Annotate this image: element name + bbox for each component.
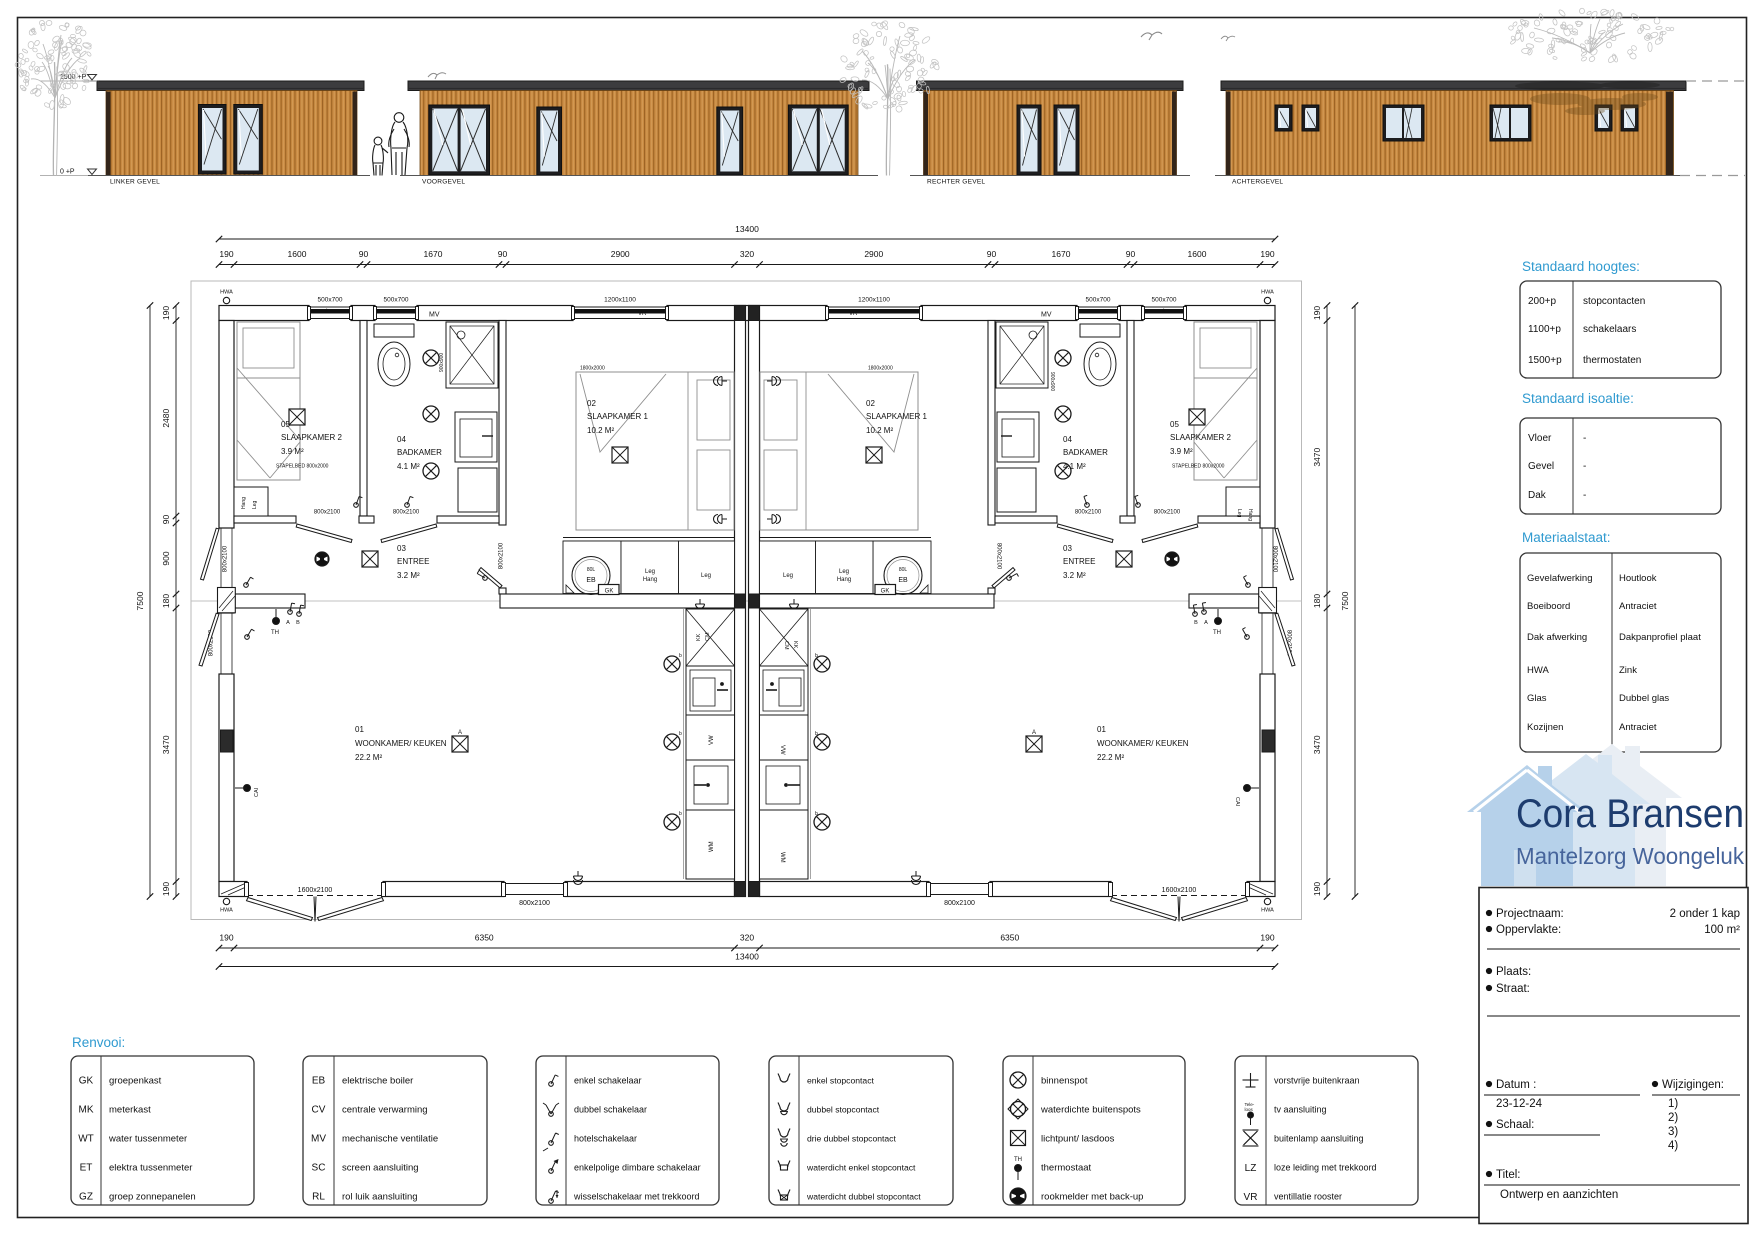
svg-text:200+p: 200+p xyxy=(1528,296,1557,307)
svg-text:02: 02 xyxy=(587,399,596,408)
svg-text:BADKAMER: BADKAMER xyxy=(397,448,442,457)
svg-text:320: 320 xyxy=(740,933,754,943)
svg-text:3.9 M²: 3.9 M² xyxy=(281,447,304,456)
svg-text:90: 90 xyxy=(161,515,171,525)
svg-text:EB: EB xyxy=(312,1076,326,1087)
svg-text:CM: CM xyxy=(705,632,711,641)
svg-text:1200x1100: 1200x1100 xyxy=(604,297,636,304)
svg-text:HWA: HWA xyxy=(1261,908,1274,914)
svg-text:1600: 1600 xyxy=(1188,249,1207,259)
svg-text:320: 320 xyxy=(740,249,754,259)
svg-text:1500+p: 1500+p xyxy=(1528,355,1562,366)
svg-text:1): 1) xyxy=(1668,1098,1678,1110)
svg-text:*: * xyxy=(1162,307,1166,317)
svg-text:80L: 80L xyxy=(587,567,596,573)
svg-text:drie dubbel stopcontact: drie dubbel stopcontact xyxy=(807,1134,896,1144)
svg-text:MV: MV xyxy=(429,312,440,319)
svg-text:800x2100: 800x2100 xyxy=(519,900,550,907)
svg-text:Gevelafwerking: Gevelafwerking xyxy=(1527,573,1592,584)
svg-text:SLAAPKAMER 2: SLAAPKAMER 2 xyxy=(281,433,342,442)
svg-text:HWA: HWA xyxy=(1261,290,1274,296)
svg-text:b: b xyxy=(679,811,682,817)
svg-text:thermostaat: thermostaat xyxy=(1041,1163,1092,1174)
svg-text:dubbel stopcontact: dubbel stopcontact xyxy=(807,1105,880,1115)
svg-text:1670: 1670 xyxy=(1052,249,1071,259)
svg-text:2900: 2900 xyxy=(611,249,630,259)
svg-text:LZ: LZ xyxy=(1245,1163,1257,1174)
svg-text:02: 02 xyxy=(866,399,875,408)
svg-text:MK: MK xyxy=(79,1105,94,1116)
svg-text:HWA: HWA xyxy=(220,908,233,914)
svg-text:B: B xyxy=(1194,620,1198,626)
svg-text:4.1 M²: 4.1 M² xyxy=(397,462,420,471)
svg-text:500x700: 500x700 xyxy=(1086,297,1111,304)
svg-text:Houtlook: Houtlook xyxy=(1619,573,1657,584)
svg-text:Dak: Dak xyxy=(1528,490,1547,501)
svg-text:STAPELBED 800x2000: STAPELBED 800x2000 xyxy=(1172,464,1225,470)
svg-text:Straat:: Straat: xyxy=(1496,983,1530,995)
svg-text:3.9 M²: 3.9 M² xyxy=(1170,447,1193,456)
svg-text:Hang: Hang xyxy=(643,577,657,583)
svg-text:elektra tussenmeter: elektra tussenmeter xyxy=(109,1163,192,1174)
svg-text:SLAAPKAMER 1: SLAAPKAMER 1 xyxy=(587,412,648,421)
svg-text:GK: GK xyxy=(881,589,890,595)
svg-text:Zink: Zink xyxy=(1619,665,1637,676)
svg-text:23-12-24: 23-12-24 xyxy=(1496,1098,1543,1110)
svg-text:1800x2000: 1800x2000 xyxy=(580,366,605,372)
svg-text:*: * xyxy=(325,307,329,317)
svg-text:190: 190 xyxy=(161,306,171,320)
svg-text:CV: CV xyxy=(312,1105,326,1116)
svg-text:Leg: Leg xyxy=(701,573,711,579)
svg-text:90: 90 xyxy=(359,249,369,259)
svg-text:Kozijnen: Kozijnen xyxy=(1527,722,1563,733)
svg-text:Materiaalstaat:: Materiaalstaat: xyxy=(1522,530,1611,545)
svg-text:KK: KK xyxy=(696,633,702,641)
svg-text:elektrische boiler: elektrische boiler xyxy=(342,1076,413,1087)
svg-text:Leg: Leg xyxy=(839,569,849,575)
svg-text:Leg: Leg xyxy=(1236,509,1242,518)
svg-text:rookmelder met back-up: rookmelder met back-up xyxy=(1041,1192,1143,1203)
svg-text:03: 03 xyxy=(397,544,406,553)
svg-text:-: - xyxy=(1583,433,1586,444)
svg-text:A: A xyxy=(458,730,462,736)
svg-text:Projectnaam:: Projectnaam: xyxy=(1496,908,1564,920)
svg-text:190: 190 xyxy=(219,933,233,943)
svg-text:190: 190 xyxy=(1260,249,1274,259)
svg-text:loze leiding met trekkoord: loze leiding met trekkoord xyxy=(1274,1163,1377,1173)
svg-text:190: 190 xyxy=(1260,933,1274,943)
svg-text:TH: TH xyxy=(1014,1157,1022,1163)
svg-text:buitenlamp aansluiting: buitenlamp aansluiting xyxy=(1274,1134,1364,1144)
svg-text:VOORGEVEL: VOORGEVEL xyxy=(422,179,465,186)
svg-text:Datum :: Datum : xyxy=(1496,1079,1536,1091)
svg-text:800x2100: 800x2100 xyxy=(499,542,505,569)
svg-text:190: 190 xyxy=(219,249,233,259)
svg-text:HWA: HWA xyxy=(220,290,233,296)
svg-text:Schaal:: Schaal: xyxy=(1496,1119,1534,1131)
svg-text:05: 05 xyxy=(1170,420,1179,429)
svg-text:ventillatie rooster: ventillatie rooster xyxy=(1274,1192,1342,1202)
svg-text:binnenspot: binnenspot xyxy=(1041,1076,1088,1087)
svg-text:500x700: 500x700 xyxy=(1152,297,1177,304)
svg-text:EB: EB xyxy=(586,577,596,584)
svg-text:1100+p: 1100+p xyxy=(1528,324,1561,335)
svg-text:VW: VW xyxy=(779,745,785,755)
svg-text:ENTREE: ENTREE xyxy=(1063,557,1095,566)
svg-text:wisselschakelaar met trekkoord: wisselschakelaar met trekkoord xyxy=(573,1192,700,1202)
svg-text:lichtpunt/ lasdoos: lichtpunt/ lasdoos xyxy=(1041,1134,1115,1145)
svg-text:LINKER GEVEL: LINKER GEVEL xyxy=(110,179,160,186)
svg-text:3.2 M²: 3.2 M² xyxy=(1063,571,1086,580)
svg-text:A: A xyxy=(1032,730,1036,736)
svg-text:Hang: Hang xyxy=(1247,509,1253,521)
svg-text:CAI: CAI xyxy=(1234,797,1240,807)
svg-text:04: 04 xyxy=(397,435,406,444)
svg-text:ACHTERGEVEL: ACHTERGEVEL xyxy=(1232,179,1283,186)
svg-text:waterdichte buitenspots: waterdichte buitenspots xyxy=(1040,1105,1141,1116)
svg-text:Ontwerp en aanzichten: Ontwerp en aanzichten xyxy=(1500,1189,1618,1201)
svg-text:Standaard hoogtes:: Standaard hoogtes: xyxy=(1522,259,1640,274)
svg-text:SLAAPKAMER 2: SLAAPKAMER 2 xyxy=(1170,433,1231,442)
svg-text:screen aansluiting: screen aansluiting xyxy=(342,1163,419,1174)
svg-text:B: B xyxy=(296,620,300,626)
svg-text:Titel:: Titel: xyxy=(1496,1169,1521,1181)
svg-text:Renvooi:: Renvooi: xyxy=(72,1035,125,1050)
svg-text:thermostaten: thermostaten xyxy=(1583,355,1641,366)
svg-text:Vloer: Vloer xyxy=(1528,433,1552,444)
svg-text:WT: WT xyxy=(78,1134,94,1145)
svg-text:Dakpanprofiel plaat: Dakpanprofiel plaat xyxy=(1619,632,1701,643)
svg-text:schakelaars: schakelaars xyxy=(1583,324,1636,335)
svg-text:CM: CM xyxy=(783,641,789,650)
svg-text:MV: MV xyxy=(311,1134,326,1145)
svg-text:1600x2100: 1600x2100 xyxy=(1162,887,1197,894)
svg-text:groepenkast: groepenkast xyxy=(109,1076,162,1087)
svg-text:2 onder 1 kap: 2 onder 1 kap xyxy=(1670,908,1740,920)
svg-text:10.2 M²: 10.2 M² xyxy=(866,426,893,435)
svg-text:RECHTER GEVEL: RECHTER GEVEL xyxy=(927,179,985,186)
svg-text:Wijzigingen:: Wijzigingen: xyxy=(1662,1079,1724,1091)
svg-text:Gevel: Gevel xyxy=(1528,461,1554,472)
svg-text:3): 3) xyxy=(1668,1126,1678,1138)
svg-text:100 m²: 100 m² xyxy=(1704,924,1740,936)
svg-text:3470: 3470 xyxy=(1312,735,1322,754)
svg-text:800x2100: 800x2100 xyxy=(944,900,975,907)
svg-text:centrale verwarming: centrale verwarming xyxy=(342,1105,428,1116)
svg-text:180: 180 xyxy=(161,594,171,608)
svg-text:A: A xyxy=(286,620,290,626)
svg-text:190: 190 xyxy=(1312,882,1322,896)
svg-text:enkelpolige dimbare schakelaar: enkelpolige dimbare schakelaar xyxy=(574,1163,701,1173)
svg-text:800x2100: 800x2100 xyxy=(1075,510,1102,516)
svg-text:WM: WM xyxy=(709,841,715,852)
svg-text:7500: 7500 xyxy=(1340,591,1350,610)
svg-text:stopcontacten: stopcontacten xyxy=(1583,296,1645,307)
svg-text:1600x2100: 1600x2100 xyxy=(298,887,333,894)
svg-text:1200x1100: 1200x1100 xyxy=(858,297,890,304)
svg-text:90: 90 xyxy=(1126,249,1136,259)
svg-text:180: 180 xyxy=(1312,594,1322,608)
svg-text:dubbel schakelaar: dubbel schakelaar xyxy=(574,1105,647,1115)
svg-text:Leg: Leg xyxy=(645,569,655,575)
svg-text:0 +P: 0 +P xyxy=(60,169,75,176)
svg-text:waterdicht dubbel stopcontact: waterdicht dubbel stopcontact xyxy=(806,1192,921,1202)
svg-text:2900: 2900 xyxy=(864,249,883,259)
svg-text:4): 4) xyxy=(1668,1140,1678,1152)
svg-text:Plaats:: Plaats: xyxy=(1496,966,1531,978)
svg-text:3470: 3470 xyxy=(161,735,171,754)
svg-text:waterdicht enkel stopcontact: waterdicht enkel stopcontact xyxy=(806,1163,916,1173)
svg-text:Boeiboord: Boeiboord xyxy=(1527,601,1570,612)
svg-text:tv aansluiting: tv aansluiting xyxy=(1274,1105,1327,1115)
svg-text:Standaard isoaltie:: Standaard isoaltie: xyxy=(1522,391,1634,406)
svg-text:rol luik aansluiting: rol luik aansluiting xyxy=(342,1192,418,1203)
svg-text:SC: SC xyxy=(312,1163,326,1174)
svg-text:RL: RL xyxy=(312,1192,325,1203)
svg-text:enkel schakelaar: enkel schakelaar xyxy=(574,1076,642,1086)
svg-text:MV: MV xyxy=(1041,312,1052,319)
svg-text:b: b xyxy=(679,731,682,737)
svg-text:190: 190 xyxy=(1312,306,1322,320)
svg-text:900x900: 900x900 xyxy=(439,353,445,372)
svg-text:500x700: 500x700 xyxy=(318,297,343,304)
svg-text:03: 03 xyxy=(1063,544,1072,553)
svg-text:190: 190 xyxy=(161,882,171,896)
svg-text:b: b xyxy=(679,653,682,659)
svg-text:13400: 13400 xyxy=(735,224,759,234)
svg-text:TH: TH xyxy=(271,630,279,636)
svg-text:90: 90 xyxy=(987,249,997,259)
svg-text:meterkast: meterkast xyxy=(109,1105,151,1116)
svg-text:BADKAMER: BADKAMER xyxy=(1063,448,1108,457)
svg-text:900x900: 900x900 xyxy=(1049,372,1055,391)
svg-text:01: 01 xyxy=(355,725,364,734)
svg-text:Glas: Glas xyxy=(1527,693,1547,704)
svg-text:Antraciet: Antraciet xyxy=(1619,601,1657,612)
svg-text:6350: 6350 xyxy=(475,933,494,943)
svg-text:Dak afwerking: Dak afwerking xyxy=(1527,632,1587,643)
svg-text:1670: 1670 xyxy=(424,249,443,259)
svg-text:01: 01 xyxy=(1097,725,1106,734)
svg-text:-: - xyxy=(1583,461,1586,472)
svg-text:Cora Bransen: Cora Bransen xyxy=(1516,792,1744,836)
svg-text:ENTREE: ENTREE xyxy=(397,557,429,566)
svg-text:A: A xyxy=(1204,620,1208,626)
svg-text:STAPELBED 800x2000: STAPELBED 800x2000 xyxy=(276,464,329,470)
svg-text:800x2100: 800x2100 xyxy=(393,510,420,516)
svg-text:Mantelzorg Woongeluk: Mantelzorg Woongeluk xyxy=(1516,843,1744,869)
svg-text:800x2100: 800x2100 xyxy=(314,510,341,516)
svg-text:3470: 3470 xyxy=(1312,447,1322,466)
svg-text:b: b xyxy=(815,653,818,659)
svg-text:GK: GK xyxy=(79,1076,94,1087)
svg-text:800x2100: 800x2100 xyxy=(1272,546,1278,573)
svg-text:Leg: Leg xyxy=(252,500,258,509)
svg-text:Hang: Hang xyxy=(241,497,247,509)
svg-text:05: 05 xyxy=(281,420,290,429)
svg-text:04: 04 xyxy=(1063,435,1072,444)
svg-text:vorstvrije buitenkraan: vorstvrije buitenkraan xyxy=(1274,1076,1360,1086)
svg-text:mechanische ventilatie: mechanische ventilatie xyxy=(342,1134,438,1145)
svg-text:KK: KK xyxy=(792,641,798,649)
svg-text:loos: loos xyxy=(1245,1107,1254,1112)
svg-text:1600: 1600 xyxy=(288,249,307,259)
svg-text:2480: 2480 xyxy=(161,408,171,427)
svg-text:hotelschakelaar: hotelschakelaar xyxy=(574,1134,637,1144)
svg-text:7500: 7500 xyxy=(135,591,145,610)
svg-text:80L: 80L xyxy=(899,567,908,573)
svg-text:22.2 M²: 22.2 M² xyxy=(1097,753,1124,762)
svg-text:-: - xyxy=(1583,490,1586,501)
svg-text:GK: GK xyxy=(605,589,614,595)
svg-text:WOONKAMER/ KEUKEN: WOONKAMER/ KEUKEN xyxy=(355,739,447,748)
svg-text:22.2 M²: 22.2 M² xyxy=(355,753,382,762)
svg-text:Antraciet: Antraciet xyxy=(1619,722,1657,733)
svg-text:800x2100: 800x2100 xyxy=(223,545,229,572)
svg-text:Leg: Leg xyxy=(783,573,793,579)
svg-text:VR: VR xyxy=(1244,1192,1258,1203)
svg-text:TH: TH xyxy=(1213,630,1221,636)
svg-text:1800x2000: 1800x2000 xyxy=(868,366,893,372)
svg-text:VR: VR xyxy=(638,311,647,317)
svg-text:90: 90 xyxy=(498,249,508,259)
svg-text:800x2100: 800x2100 xyxy=(996,543,1002,570)
svg-text:3.2 M²: 3.2 M² xyxy=(397,571,420,580)
svg-text:b: b xyxy=(815,811,818,817)
svg-text:800x2100: 800x2100 xyxy=(1154,510,1181,516)
svg-text:900: 900 xyxy=(161,551,171,565)
svg-text:HWA: HWA xyxy=(1527,665,1549,676)
svg-text:VW: VW xyxy=(709,735,715,745)
svg-text:WOONKAMER/ KEUKEN: WOONKAMER/ KEUKEN xyxy=(1097,739,1189,748)
svg-text:10.2 M²: 10.2 M² xyxy=(587,426,614,435)
svg-text:6350: 6350 xyxy=(1000,933,1019,943)
svg-text:CAI: CAI xyxy=(254,787,260,797)
svg-text:enkel stopcontact: enkel stopcontact xyxy=(807,1076,874,1086)
svg-text:4.1 M²: 4.1 M² xyxy=(1063,462,1086,471)
svg-text:b: b xyxy=(815,731,818,737)
svg-text:Hang: Hang xyxy=(837,577,851,583)
svg-text:SLAAPKAMER 1: SLAAPKAMER 1 xyxy=(866,412,927,421)
svg-text:EB: EB xyxy=(898,577,908,584)
svg-text:500x700: 500x700 xyxy=(384,297,409,304)
svg-text:Oppervlakte:: Oppervlakte: xyxy=(1496,924,1561,936)
svg-text:ET: ET xyxy=(80,1163,93,1174)
svg-text:groep zonnepanelen: groep zonnepanelen xyxy=(109,1192,196,1203)
svg-text:2): 2) xyxy=(1668,1112,1678,1124)
svg-text:GZ: GZ xyxy=(79,1192,93,1203)
svg-text:13400: 13400 xyxy=(735,952,759,962)
svg-text:Dubbel glas: Dubbel glas xyxy=(1619,693,1669,704)
svg-text:water tussenmeter: water tussenmeter xyxy=(108,1134,187,1145)
svg-text:WM: WM xyxy=(779,852,785,863)
svg-text:VR: VR xyxy=(849,311,858,317)
